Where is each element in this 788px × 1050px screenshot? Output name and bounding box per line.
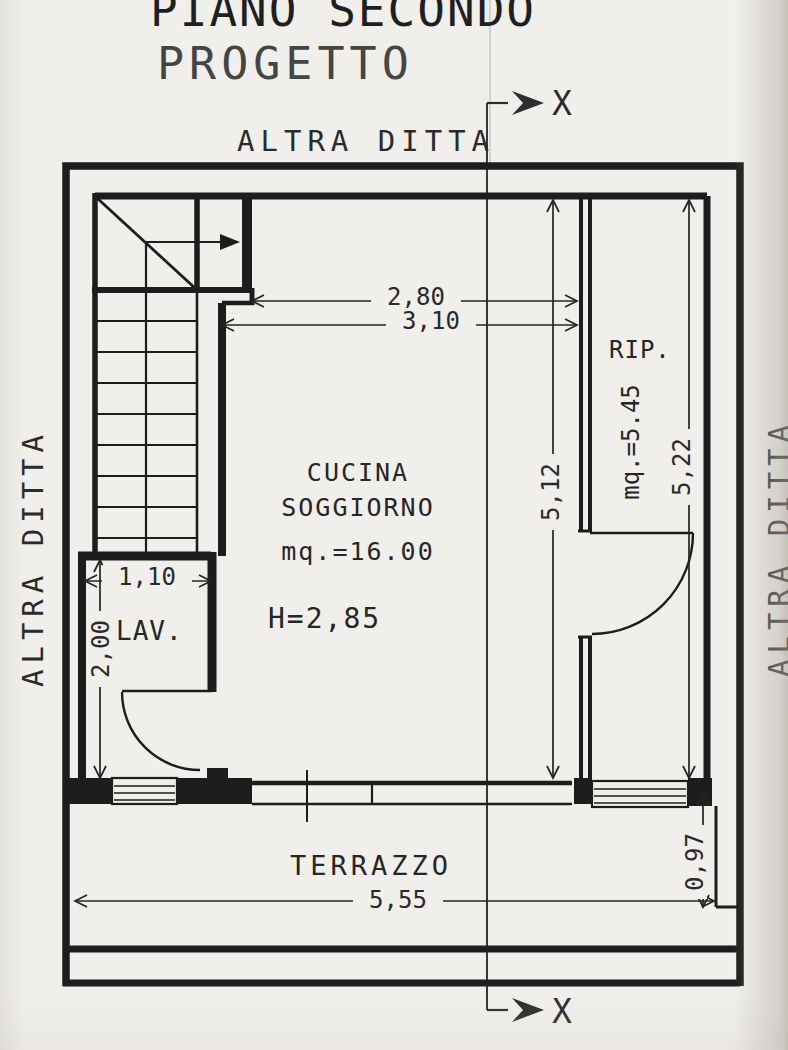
kitchen-label-block: CUCINA SOGGIORNO mq.=16.00 [258,460,458,564]
section-marker-bottom: X [552,992,572,1031]
laundry-door-arc [122,692,200,770]
section-line [487,91,544,1022]
dim-kitchen-width-inner: 2,80 [371,285,461,309]
stair-direction-arrow [220,234,240,250]
neighbor-label-left: ALTRA DITTA [16,423,50,693]
neighbor-label-top: ALTRA DITTA [237,124,495,158]
neighbor-label-right: ALTRA DITTA [762,413,788,683]
kitchen-name-line2: SOGGIORNO [258,495,458,520]
dim-kitchen-depth: 5,12 [539,454,563,530]
kitchen-west-walls [222,196,254,556]
stairs [92,193,252,556]
storage-name: RIP. [609,336,671,364]
kitchen-ceiling-height: H=2,85 [268,602,381,635]
storage-area: mq.=5.45 [617,367,645,517]
storage-door-arc [592,533,693,634]
plan-title-line2: PROGETTO [157,37,414,90]
plan-title-line1: PIANO SECONDO [150,0,536,37]
section-arrow-bottom [512,998,544,1022]
door-jamb-notch [207,768,228,779]
dim-terrace-width: 5,55 [353,888,443,912]
dim-laundry-width: 1,10 [102,565,192,589]
dim-storage-depth: 5,22 [670,429,694,505]
section-arrow-top [512,91,544,115]
laundry-name: LAV. [116,616,183,646]
section-marker-top: X [552,84,572,123]
dim-terrace-side-depth: 0,97 [683,825,707,899]
floor-plan-scan: PIANO SECONDO PROGETTO ALTRA DITTA ALTRA… [0,0,788,1050]
dim-laundry-depth: 2,00 [89,611,113,687]
terrace-name: TERRAZZO [290,850,452,881]
kitchen-name-line1: CUCINA [258,460,458,485]
kitchen-area: mq.=16.00 [258,539,458,564]
dim-kitchen-width-outer: 3,10 [386,309,476,333]
